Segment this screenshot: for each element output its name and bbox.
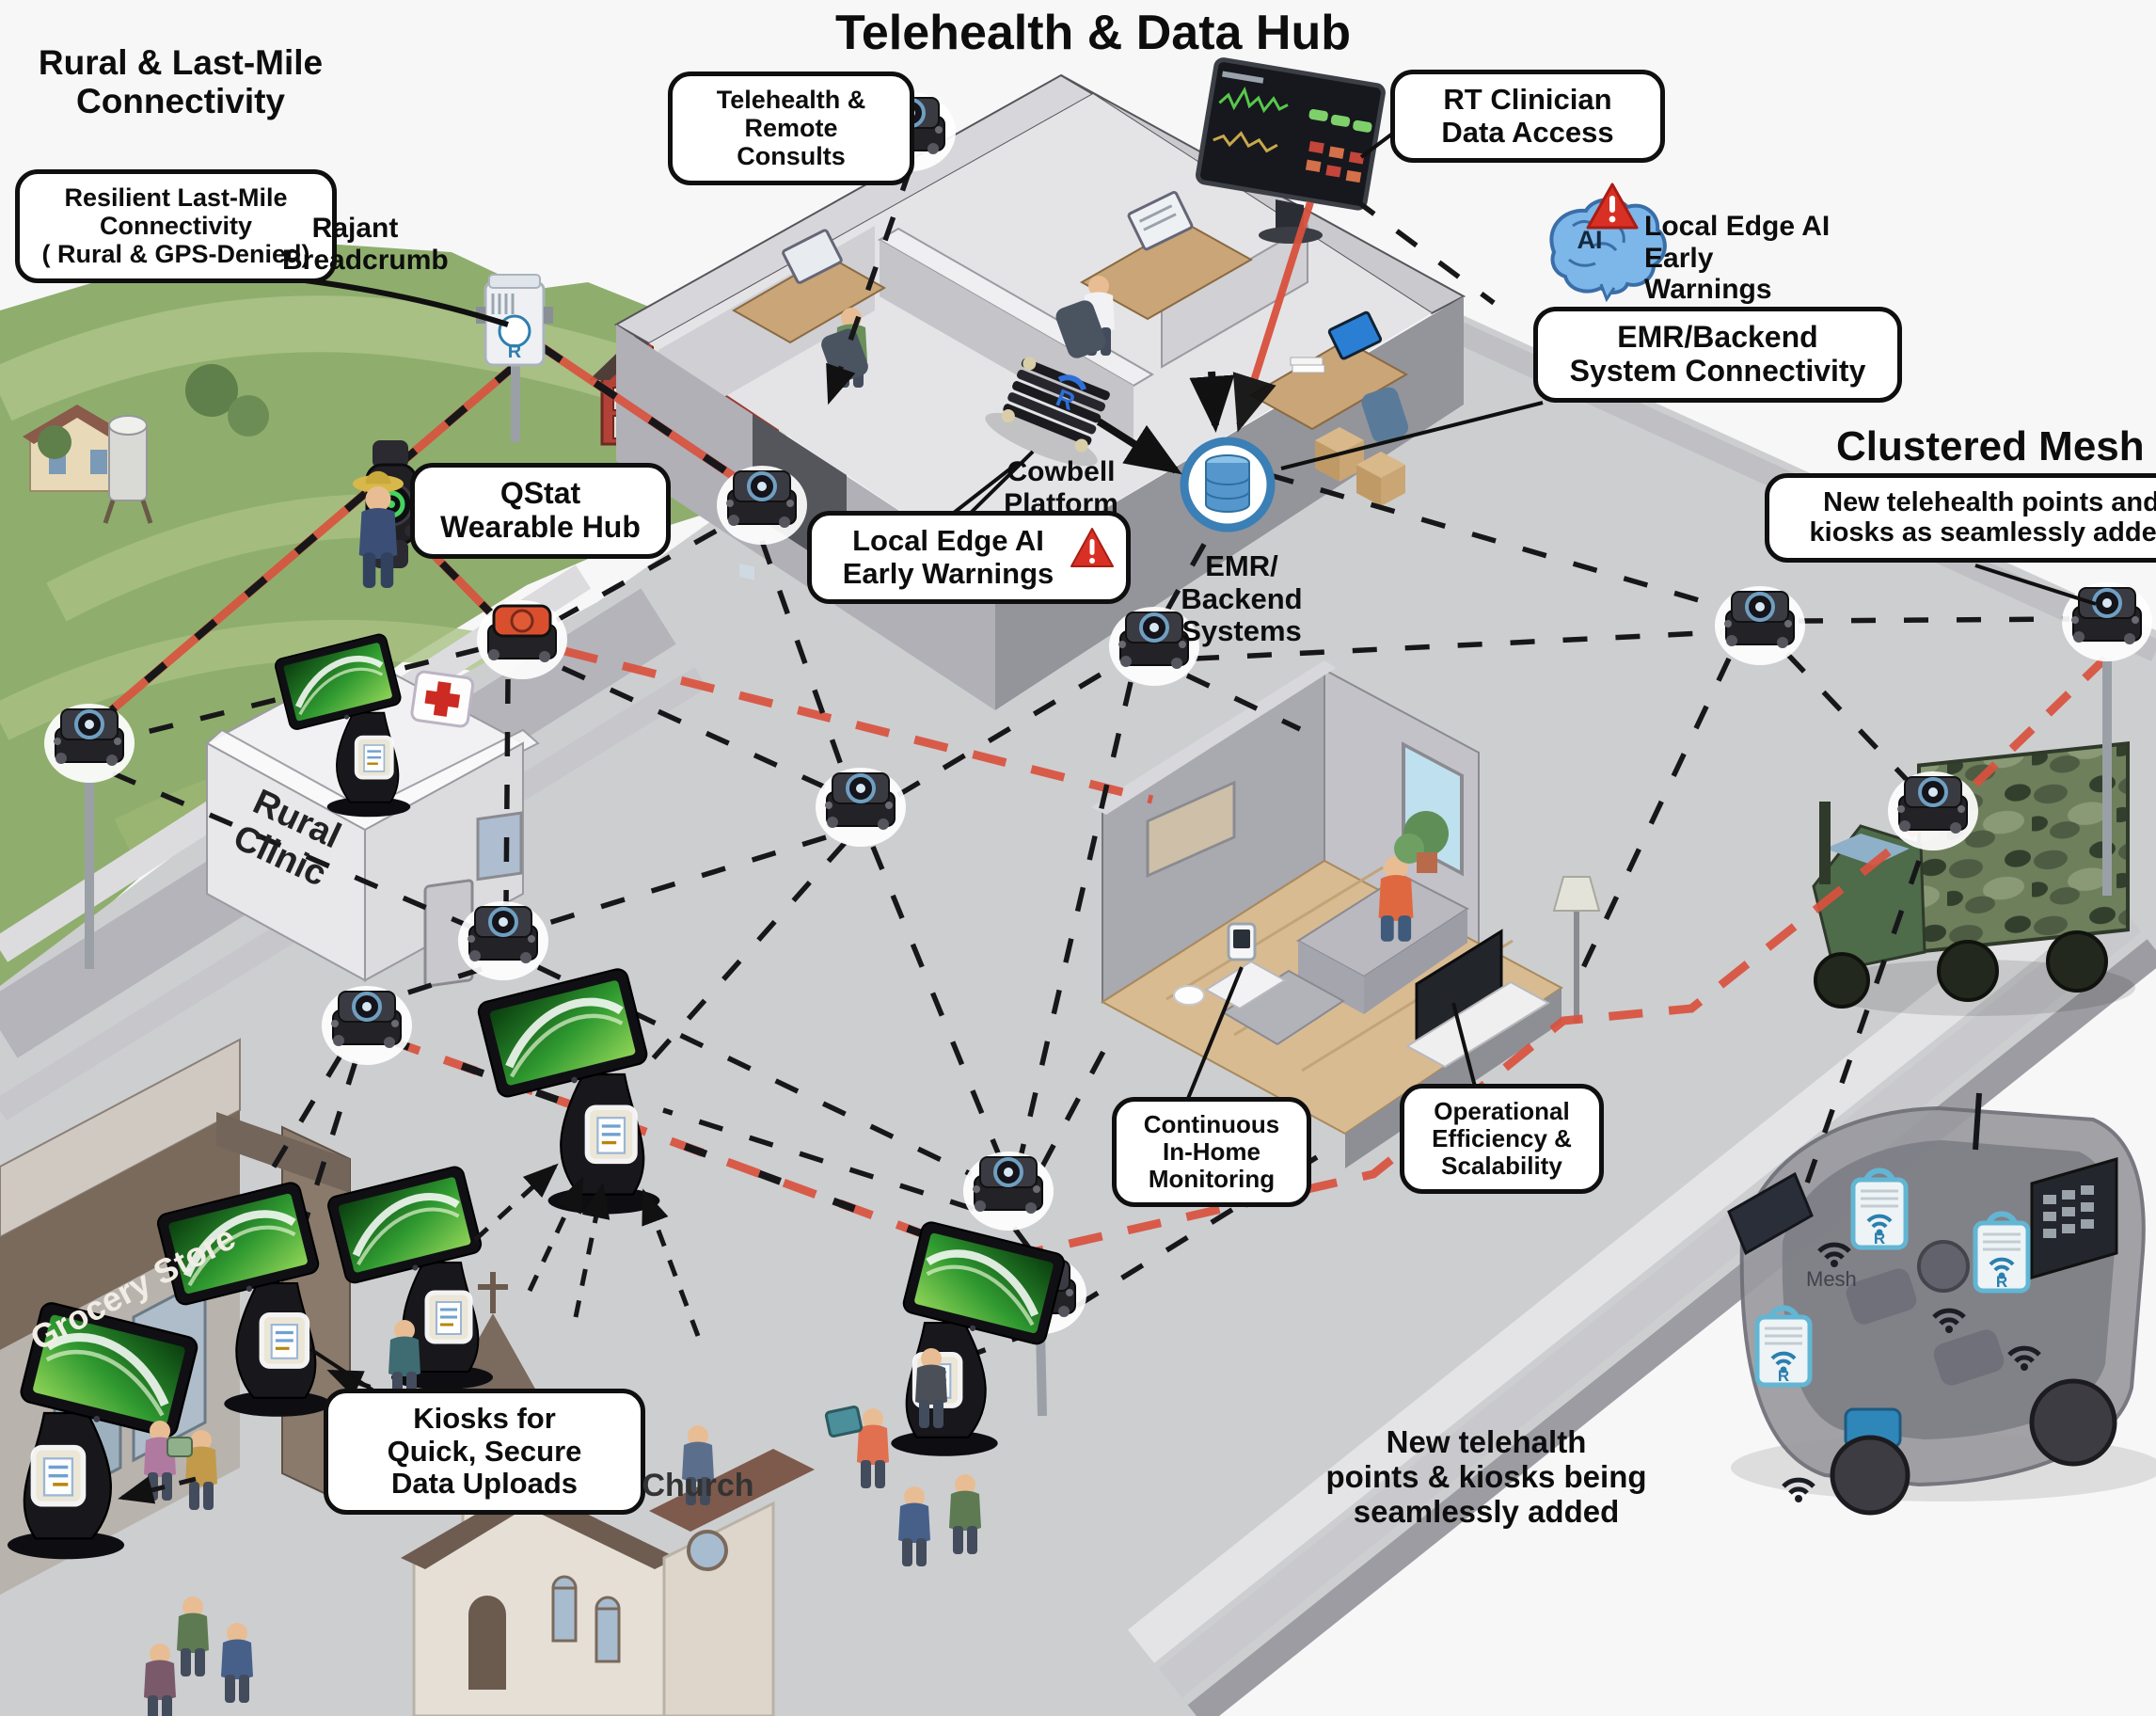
- mesh-node: [458, 901, 548, 980]
- label-rajant-breadcrumb: Rajant Breadcrumb: [282, 213, 428, 276]
- rajant-device-in-van: [1975, 1214, 2028, 1291]
- label-edge-ai-right: Local Edge AI Early Warnings: [1644, 211, 1842, 306]
- warning-triangle-icon: [1070, 527, 1115, 568]
- callout-qstat-text: QStat Wearable Hub: [440, 477, 641, 545]
- tree: [228, 395, 269, 437]
- database-icon: [1184, 441, 1271, 528]
- callout-operational: Operational Efficiency & Scalability: [1400, 1084, 1604, 1194]
- mesh-node: [1888, 771, 1978, 850]
- label-church: Church: [632, 1468, 764, 1503]
- callout-telehealth-consults-text: Telehealth & Remote Consults: [688, 86, 895, 171]
- mesh-node: [44, 704, 135, 783]
- callout-new-points-right-text: New telehealth points and kiosks as seam…: [1810, 487, 2156, 548]
- clinician-dashboard-monitor: [1197, 58, 1384, 209]
- page-title: Telehealth & Data Hub: [820, 6, 1366, 60]
- medical-cross-icon: [411, 671, 474, 727]
- heading-clustered-mesh: Clustered Mesh: [1836, 423, 2156, 469]
- label-van-mesh: Mesh: [1806, 1268, 1891, 1292]
- shopping-basket: [167, 1438, 192, 1456]
- telehealth-network-diagram: R: [0, 0, 2156, 1716]
- mesh-node: [2062, 582, 2152, 661]
- callout-rt-clinician: RT Clinician Data Access: [1390, 70, 1665, 163]
- mesh-node: [322, 986, 412, 1065]
- label-new-points-bottom: New telehalth points & kiosks being seam…: [1317, 1425, 1656, 1530]
- tree: [38, 425, 71, 459]
- ai-badge: AI: [1565, 226, 1614, 254]
- callout-resilient-text: Resilient Last-Mile Connectivity ( Rural…: [41, 183, 309, 269]
- callout-rt-clinician-text: RT Clinician Data Access: [1441, 84, 1613, 149]
- mesh-node-orange: [477, 600, 567, 679]
- callout-continuous-text: Continuous In-Home Monitoring: [1144, 1111, 1279, 1193]
- rajant-device-in-van: [1853, 1170, 1906, 1247]
- callout-operational-text: Operational Efficiency & Scalability: [1432, 1098, 1572, 1180]
- callout-kiosks-uploads-text: Kiosks for Quick, Secure Data Uploads: [388, 1403, 582, 1501]
- mesh-node: [816, 768, 906, 847]
- svg-text:R: R: [508, 342, 522, 362]
- heading-rural-last-mile: Rural & Last-Mile Connectivity: [21, 43, 341, 121]
- mesh-node: [963, 1152, 1054, 1231]
- rajant-device-in-van: [1757, 1308, 1810, 1385]
- label-emr-systems: EMR/ Backend Systems: [1181, 550, 1303, 648]
- callout-emr-connectivity-text: EMR/Backend System Connectivity: [1570, 321, 1866, 389]
- mesh-van-cutaway: [1729, 1093, 2156, 1513]
- mesh-node: [717, 466, 807, 545]
- callout-edge-ai-center: Local Edge AI Early Warnings: [807, 511, 1131, 604]
- callout-emr-connectivity: EMR/Backend System Connectivity: [1533, 307, 1902, 403]
- callout-qstat: QStat Wearable Hub: [410, 463, 671, 559]
- callout-edge-ai-center-text: Local Edge AI Early Warnings: [843, 525, 1054, 590]
- callout-telehealth-consults: Telehealth & Remote Consults: [668, 71, 914, 185]
- callout-continuous: Continuous In-Home Monitoring: [1112, 1097, 1311, 1207]
- mesh-node: [1715, 586, 1805, 665]
- in-home-monitor-device: [1229, 924, 1255, 960]
- callout-new-points-right: New telehealth points and kiosks as seam…: [1765, 473, 2156, 563]
- callout-kiosks-uploads: Kiosks for Quick, Secure Data Uploads: [324, 1389, 645, 1515]
